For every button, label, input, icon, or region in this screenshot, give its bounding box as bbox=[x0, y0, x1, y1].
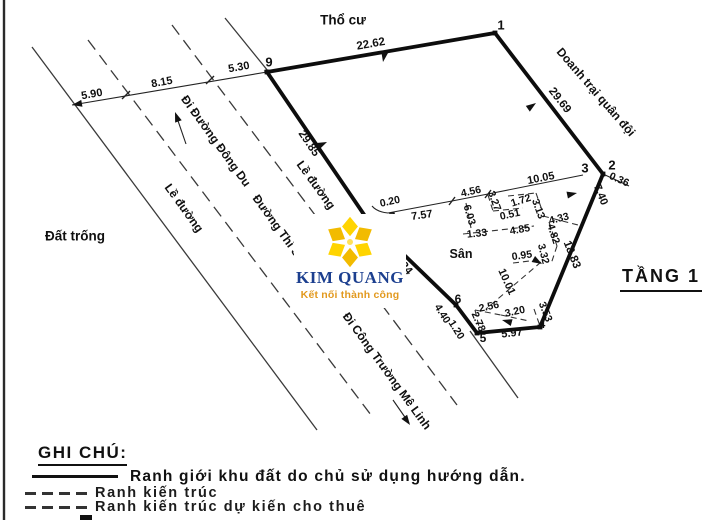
legend-sample-blob bbox=[80, 515, 92, 520]
arrow-29-69 bbox=[526, 100, 538, 111]
corner-4-marker bbox=[538, 325, 543, 330]
arrow-dir-me-linh bbox=[401, 415, 412, 427]
arrow-10-05 bbox=[566, 190, 577, 199]
road-line-outer-right-lower bbox=[470, 331, 518, 398]
legend-row-boundary: Ranh giới khu đất do chủ sử dụng hướng d… bbox=[0, 468, 718, 484]
legend-row-partial bbox=[0, 512, 718, 520]
arrow-3-20 bbox=[501, 317, 512, 326]
dim-line-left bbox=[72, 72, 267, 105]
road-line-outer-right-upper bbox=[225, 18, 268, 71]
inner-wall-4-82 bbox=[549, 222, 557, 246]
road-line-dash-right-lower bbox=[382, 305, 457, 405]
legend-sample-dashed-line-2 bbox=[25, 506, 91, 509]
inner-wall-10-01 bbox=[486, 262, 541, 309]
inner-wall-3-13 bbox=[536, 193, 543, 213]
arrow-dir-dong-du bbox=[172, 111, 182, 123]
inner-wall-3-27 bbox=[488, 195, 493, 211]
corner-6-marker bbox=[454, 303, 459, 308]
inner-wall-1-33 bbox=[463, 232, 482, 234]
inner-wall-3-32 bbox=[551, 246, 557, 264]
floor-tag-label: TẦNG 1 bbox=[620, 266, 702, 292]
inner-wall-0-51 bbox=[493, 208, 523, 211]
corner-5-marker bbox=[475, 331, 480, 336]
logo-tagline-text: Kết nối thành công bbox=[294, 289, 406, 301]
legend: GHI CHÚ: Ranh giới khu đất do chủ sử dụn… bbox=[0, 440, 718, 520]
inner-wall-4-85 bbox=[482, 226, 534, 232]
leader-0-20-arc bbox=[372, 206, 388, 213]
road-line-dash-right-upper bbox=[172, 25, 315, 215]
inner-wall-1-72 bbox=[508, 193, 536, 196]
corner-1-marker bbox=[493, 31, 498, 36]
inner-wall-4-33 bbox=[543, 216, 578, 225]
logo-flower-icon bbox=[321, 214, 379, 270]
corner-2-marker bbox=[601, 172, 606, 177]
leader-0-36 bbox=[603, 174, 629, 186]
legend-sample-solid-line bbox=[32, 475, 118, 478]
legend-sample-dashed-line bbox=[25, 492, 87, 495]
inner-wall-2-78 bbox=[475, 310, 480, 331]
logo-brand-text: KIM QUANG bbox=[294, 268, 406, 288]
inner-wall-2-56 bbox=[475, 310, 501, 315]
inner-wall-3-53 bbox=[534, 309, 540, 326]
dim-chain-top bbox=[388, 175, 583, 213]
kim-quang-logo: KIM QUANG Kết nối thành công bbox=[294, 214, 406, 308]
survey-drawing-page: Thổ cưĐất trốngSânLề đườngĐi Đường Đông … bbox=[0, 0, 718, 520]
inner-wall-6-03 bbox=[466, 203, 471, 228]
corner-9-marker bbox=[265, 70, 270, 75]
legend-title: GHI CHÚ: bbox=[38, 443, 127, 466]
